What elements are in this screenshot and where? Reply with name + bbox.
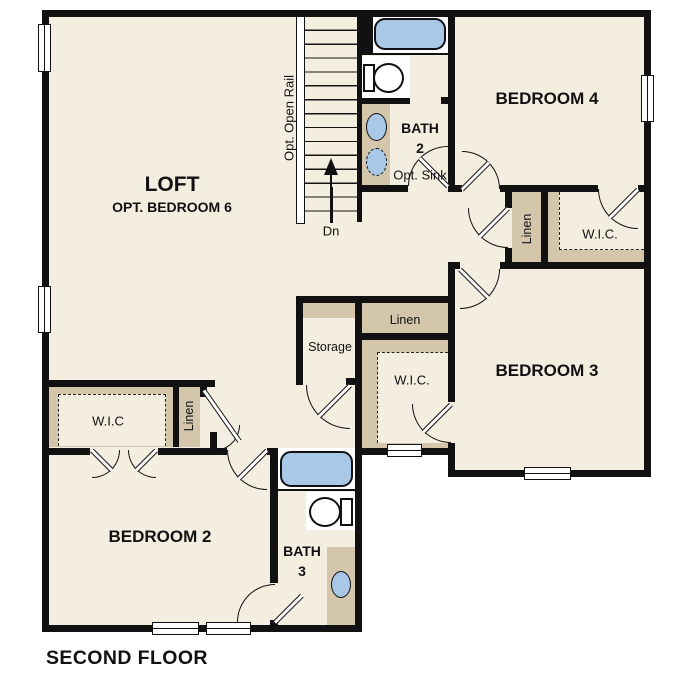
wall [448, 443, 455, 477]
toilet-tank-icon [340, 498, 353, 526]
bath3-label: BATH [283, 543, 321, 559]
bedroom3-label: BEDROOM 3 [496, 361, 599, 381]
wall [355, 296, 362, 632]
window [38, 24, 51, 72]
up-arrow-icon [324, 158, 338, 175]
bath2-label: BATH [401, 120, 439, 136]
open-rail-label: Opt. Open Rail [282, 75, 297, 161]
wall [500, 185, 598, 192]
wall [270, 448, 278, 583]
sink-icon [366, 113, 387, 141]
window [524, 467, 571, 480]
page-title: SECOND FLOOR [46, 647, 208, 670]
wall [500, 262, 651, 269]
wall [441, 97, 448, 104]
wic-bedroom2-label: W.I.C [92, 414, 124, 429]
wall [42, 380, 215, 387]
bedroom2-label: BEDROOM 2 [109, 527, 212, 547]
wall [42, 10, 651, 17]
optional-sink-label: Opt. Sink [393, 168, 446, 183]
wall [357, 98, 410, 104]
wall [448, 10, 455, 192]
sink-icon [331, 571, 351, 598]
stairs-down-label: Dn [323, 224, 340, 239]
bathtub-icon [280, 451, 353, 487]
wall [361, 53, 449, 55]
stair-rail [296, 13, 305, 224]
bath3-number: 3 [298, 563, 306, 579]
wall [541, 192, 548, 267]
wall [357, 185, 408, 192]
linen-hall-label: Linen [390, 313, 421, 327]
window [38, 286, 51, 333]
loft-option-label: OPT. BEDROOM 6 [112, 199, 232, 215]
wall [362, 10, 373, 53]
window [641, 75, 654, 122]
wall [296, 296, 455, 303]
stair-direction-line [330, 175, 332, 223]
wic-bedroom4-label: W.I.C. [582, 227, 617, 242]
wall [448, 262, 460, 269]
wic-bedroom3-label: W.I.C. [394, 373, 429, 388]
bath2-number: 2 [416, 140, 424, 156]
toilet-icon [309, 497, 341, 527]
wall [296, 303, 303, 385]
floor-plan: LOFT OPT. BEDROOM 6 BEDROOM 4 BEDROOM 3 … [0, 0, 687, 687]
optional-sink-icon [366, 148, 387, 176]
wall [42, 625, 362, 632]
toilet-icon [373, 63, 404, 93]
wall [355, 333, 455, 340]
window [152, 622, 199, 635]
storage-shelf [303, 303, 355, 318]
loft-label: LOFT [145, 173, 200, 197]
wall [173, 387, 179, 447]
bedroom4-label: BEDROOM 4 [496, 89, 599, 109]
window [206, 622, 251, 635]
linen-upper-hall-label: Linen [520, 214, 534, 245]
bathtub-icon [374, 18, 446, 50]
window [387, 444, 422, 457]
storage-label: Storage [308, 340, 352, 354]
wall [42, 448, 90, 455]
wall [278, 489, 355, 491]
linen-bedroom2-label: Linen [182, 401, 196, 432]
